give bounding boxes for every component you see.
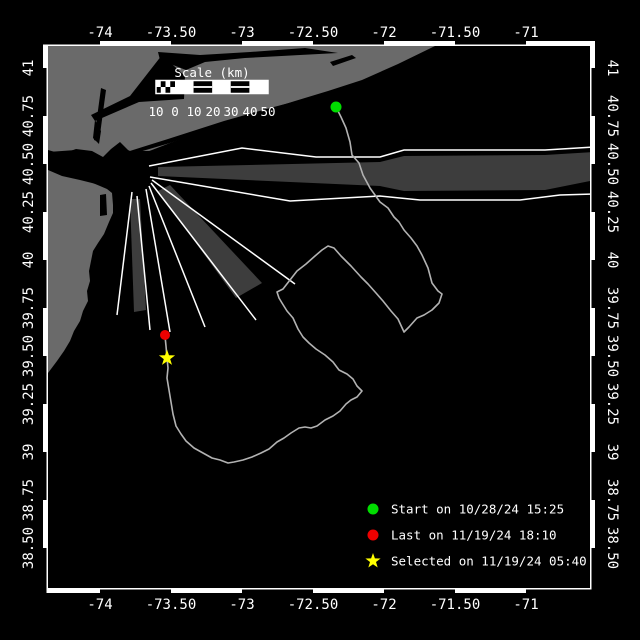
lat-tick-label-right: 40.25: [604, 191, 620, 233]
scale-bar-tick-label: 20: [205, 104, 220, 119]
lat-tick-label-right: 38.75: [604, 479, 620, 521]
lon-tick-label-top: -72: [371, 25, 396, 41]
scale-bar-tick-label: 10: [148, 104, 163, 119]
map-window: -74-74-73.50-73.50-73-73-72.50-72.50-72-…: [0, 0, 640, 640]
lat-tick-label-right: 40.50: [604, 143, 620, 185]
lon-tick-label-bottom: -72: [371, 597, 396, 613]
legend-label: Last on 11/19/24 18:10: [391, 528, 557, 543]
lat-tick-label-left: 40: [21, 252, 37, 269]
scale-bar-tick-label: 0: [171, 104, 179, 119]
scale-bar-tick-label: 50: [260, 104, 275, 119]
legend-label: Start on 10/28/24 15:25: [391, 502, 564, 517]
lon-tick-label-top: -71: [513, 25, 538, 41]
lat-tick-label-right: 39.75: [604, 287, 620, 329]
lat-tick-label-left: 40.25: [21, 191, 37, 233]
track-legend: Start on 10/28/24 15:25Last on 11/19/24 …: [365, 502, 586, 569]
lat-tick-label-right: 39.25: [604, 383, 620, 425]
lat-tick-label-left: 40.50: [21, 143, 37, 185]
scale-bar-title: Scale (km): [174, 65, 249, 80]
last-legend-dot: [368, 530, 379, 541]
lon-tick-label-top: -73: [229, 25, 254, 41]
lat-tick-label-right: 39.50: [604, 335, 620, 377]
lat-tick-label-left: 39: [21, 444, 37, 461]
scale-bar-tick-label: 30: [223, 104, 238, 119]
lat-tick-label-left: 41: [21, 60, 37, 77]
lon-tick-label-bottom: -73: [229, 597, 254, 613]
start-marker[interactable]: [331, 102, 342, 113]
last-marker[interactable]: [160, 330, 170, 340]
lon-tick-label-bottom: -74: [87, 597, 112, 613]
map-canvas[interactable]: -74-74-73.50-73.50-73-73-72.50-72.50-72-…: [0, 0, 640, 640]
lon-tick-label-bottom: -71: [513, 597, 538, 613]
start-legend-dot: [368, 504, 379, 515]
lat-tick-label-right: 40.75: [604, 95, 620, 137]
lat-tick-label-right: 39: [604, 444, 620, 461]
bay-water: [100, 194, 107, 216]
lat-tick-label-left: 39.75: [21, 287, 37, 329]
lon-tick-label-bottom: -71.50: [430, 597, 481, 613]
lat-tick-label-right: 41: [604, 60, 620, 77]
lat-tick-label-right: 40: [604, 252, 620, 269]
lon-tick-label-top: -72.50: [288, 25, 339, 41]
lon-tick-label-top: -71.50: [430, 25, 481, 41]
lon-tick-label-top: -74: [87, 25, 112, 41]
lat-tick-label-left: 39.50: [21, 335, 37, 377]
legend-label: Selected on 11/19/24 05:40: [391, 554, 587, 569]
lat-tick-label-left: 38.50: [21, 527, 37, 569]
scale-bar-tick-label: 40: [242, 104, 257, 119]
lon-tick-label-top: -73.50: [146, 25, 197, 41]
lat-tick-label-left: 38.75: [21, 479, 37, 521]
lat-tick-label-left: 40.75: [21, 95, 37, 137]
lat-tick-label-left: 39.25: [21, 383, 37, 425]
scale-bar-tick-label: 10: [186, 104, 201, 119]
lat-tick-label-right: 38.50: [604, 527, 620, 569]
lon-tick-label-bottom: -72.50: [288, 597, 339, 613]
lon-tick-label-bottom: -73.50: [146, 597, 197, 613]
